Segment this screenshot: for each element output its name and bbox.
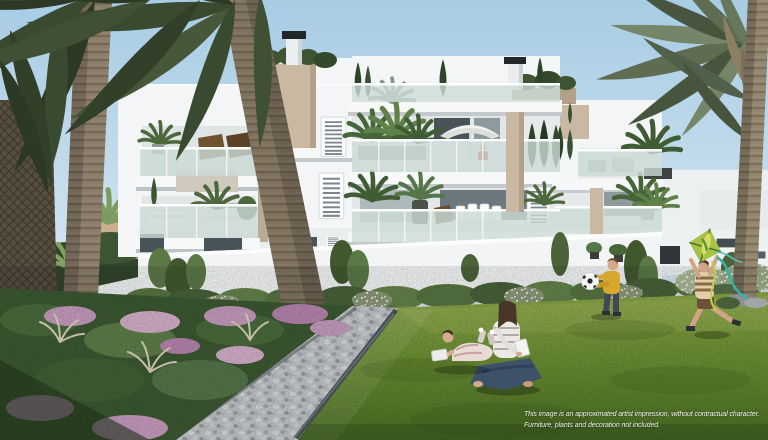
soccer-ball bbox=[581, 272, 599, 290]
artist-impression-scene bbox=[0, 0, 768, 440]
disclaimer-line-1: This image is an approximated artist imp… bbox=[524, 409, 768, 420]
child-tablet bbox=[431, 349, 447, 361]
property-render-screenshot: This image is an approximated artist imp… bbox=[0, 0, 768, 440]
woman-striped-shirt bbox=[493, 320, 520, 358]
chimney-a bbox=[286, 39, 302, 65]
disclaimer-line-2: Furniture, plants and decoration not inc… bbox=[524, 420, 768, 431]
wall-doorway bbox=[660, 246, 680, 264]
disclaimer: This image is an approximated artist imp… bbox=[524, 409, 768, 431]
